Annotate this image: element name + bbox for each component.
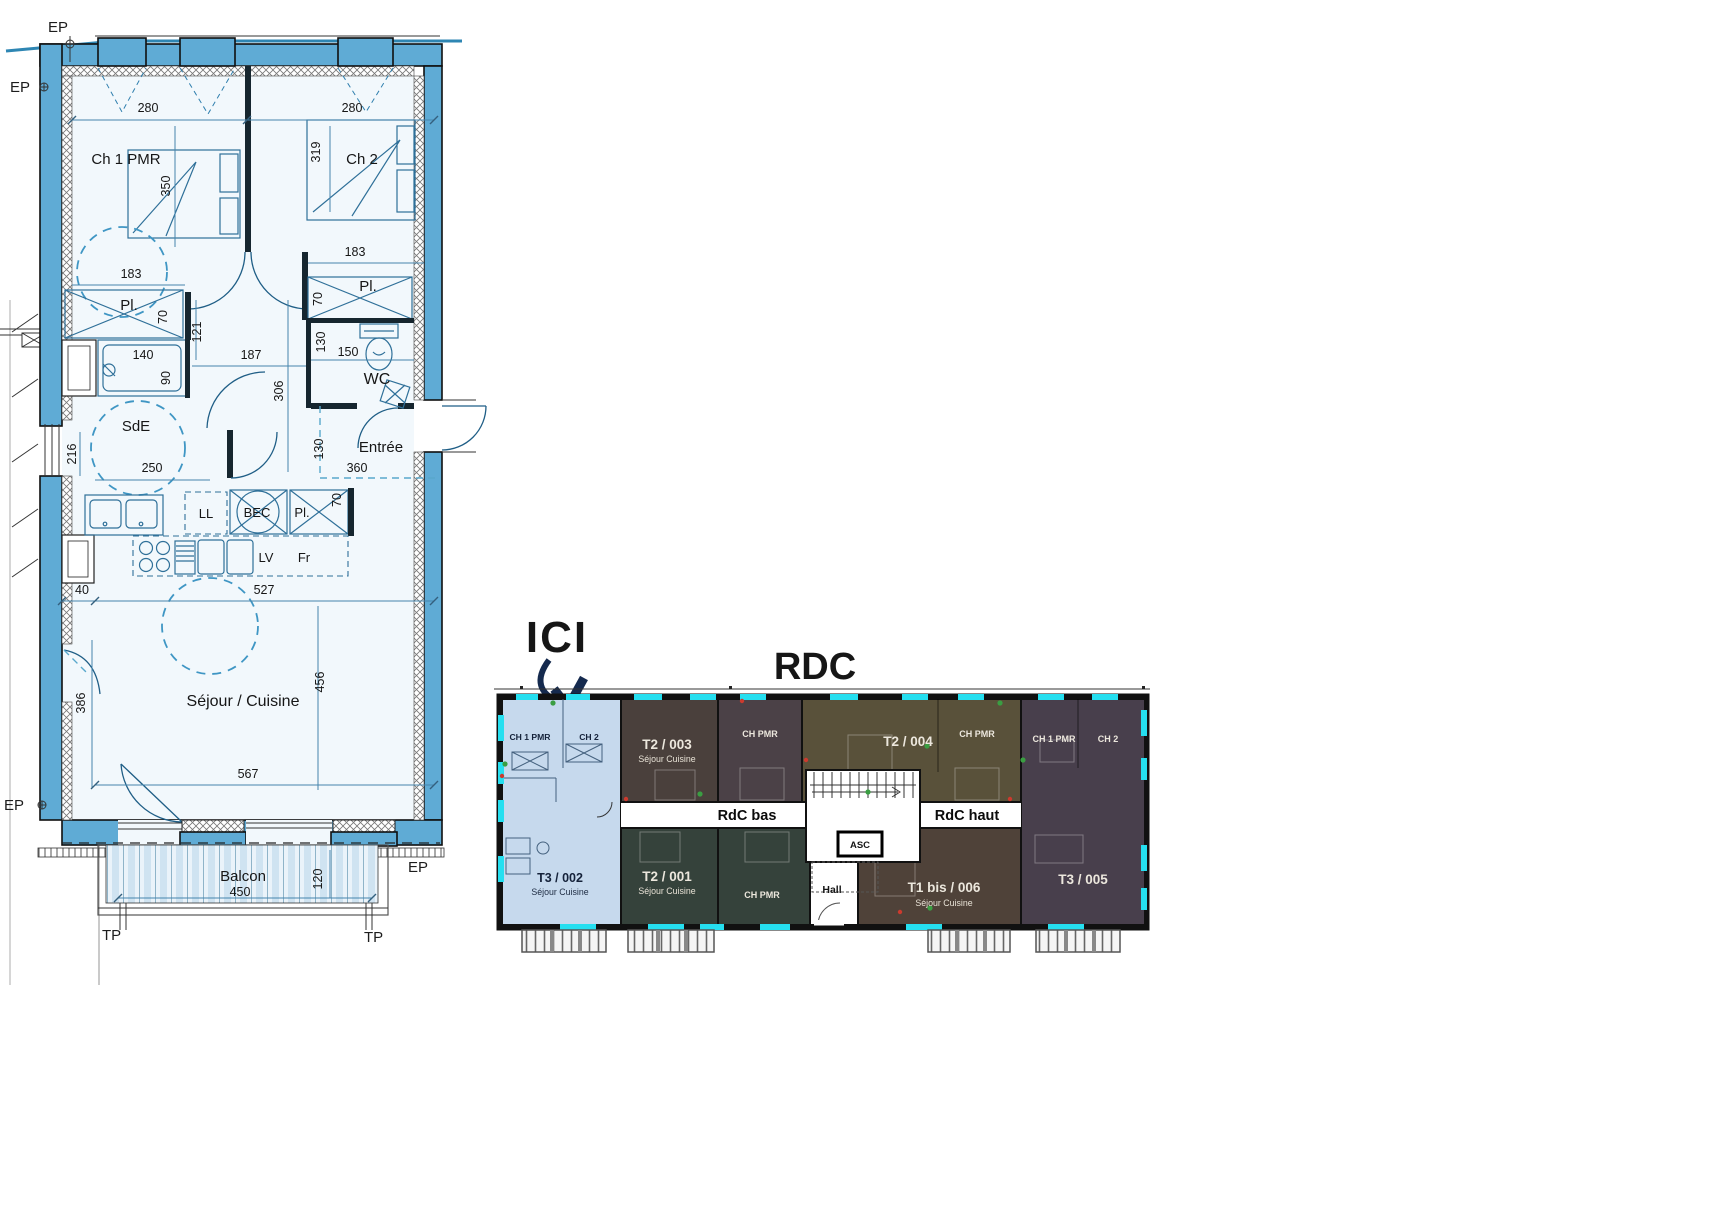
room-label-sejour: Séjour / Cuisine bbox=[187, 693, 300, 710]
unit-ch-pmr-top bbox=[718, 699, 802, 802]
dim-entree-w: 360 bbox=[347, 461, 368, 475]
corridor-right-label: RdC haut bbox=[935, 808, 1000, 824]
dim-sejour-h: 456 bbox=[313, 672, 327, 693]
t3-002-id: T3 / 002 bbox=[537, 871, 583, 885]
dim-sde-w: 250 bbox=[142, 461, 163, 475]
ch-pmr-top-label: CH PMR bbox=[742, 729, 778, 739]
closet-left-label: Pl. bbox=[120, 297, 138, 314]
ep-marker-left: EP bbox=[10, 79, 30, 96]
room-label-ch1: Ch 1 PMR bbox=[91, 151, 160, 168]
dim-hall-h: 306 bbox=[272, 381, 286, 402]
dim-wc-d: 130 bbox=[314, 332, 328, 353]
dishwasher-label: LV bbox=[259, 550, 274, 565]
room-label-wc: WC bbox=[364, 371, 391, 388]
dim-hall-w: 121 bbox=[190, 322, 204, 343]
here-label: ICI bbox=[526, 613, 588, 662]
t3-005-id: T3 / 005 bbox=[1058, 872, 1108, 887]
overview-title: RDC bbox=[774, 646, 856, 688]
dim-kitchen-off: 40 bbox=[75, 583, 89, 597]
t2-001-id: T2 / 001 bbox=[642, 869, 692, 884]
dim-balcon-d: 120 bbox=[311, 869, 325, 890]
bec-label: BEC bbox=[244, 505, 271, 520]
t2-003-living: Séjour Cuisine bbox=[638, 754, 695, 764]
dim-ch1-w: 280 bbox=[138, 101, 159, 115]
left-window bbox=[45, 424, 59, 476]
t1bis-006-living: Séjour Cuisine bbox=[915, 898, 972, 908]
dim-ch2-cl: 183 bbox=[345, 245, 366, 259]
dim-sejour-side: 386 bbox=[74, 693, 88, 714]
tp-marker-left: TP bbox=[102, 927, 121, 944]
t2-004-id: T2 / 004 bbox=[883, 734, 933, 749]
ep-marker-top: EP bbox=[48, 19, 68, 36]
t2-001-room: CH PMR bbox=[744, 890, 780, 900]
dim-ch2-w: 280 bbox=[342, 101, 363, 115]
dim-shower-w: 140 bbox=[133, 348, 154, 362]
dim-pl-right: 70 bbox=[311, 292, 325, 306]
room-label-entree: Entrée bbox=[359, 439, 403, 456]
overview-plan: ICI RDC bbox=[494, 613, 1150, 952]
t3-005-room1: CH 1 PMR bbox=[1032, 734, 1076, 744]
t2-004-room: CH PMR bbox=[959, 729, 995, 739]
balcony-stubs bbox=[522, 930, 1120, 952]
t2-001-living: Séjour Cuisine bbox=[638, 886, 695, 896]
dim-wc-w: 150 bbox=[338, 345, 359, 359]
dim-sde-d: 216 bbox=[65, 444, 79, 465]
dim-pl-left: 70 bbox=[156, 310, 170, 324]
t3-005-room2: CH 2 bbox=[1098, 734, 1119, 744]
dim-ch2-h: 319 bbox=[309, 142, 323, 163]
corridor-left-label: RdC bas bbox=[718, 808, 777, 824]
dim-hall-l: 187 bbox=[241, 348, 262, 362]
t3-002-living: Séjour Cuisine bbox=[531, 887, 588, 897]
t1bis-006-id: T1 bis / 006 bbox=[908, 880, 981, 895]
unit-ch-pmr-bottom bbox=[718, 828, 810, 925]
dim-balcon-w: 450 bbox=[230, 885, 251, 899]
dim-pl-kitchen: 70 bbox=[330, 493, 344, 507]
dim-ch1-h: 350 bbox=[159, 176, 173, 197]
unit-t3-005 bbox=[1021, 699, 1145, 925]
tp-marker-right: TP bbox=[364, 929, 383, 946]
t3-002-room1: CH 1 PMR bbox=[509, 732, 551, 742]
floor-plan-canvas: Ch 1 PMR Ch 2 Pl. Pl. bbox=[0, 0, 1734, 1226]
fridge-label: Fr bbox=[298, 550, 311, 565]
closet-right-label: Pl. bbox=[359, 278, 377, 295]
detail-plan: Ch 1 PMR Ch 2 Pl. Pl. bbox=[0, 19, 486, 985]
dim-shower-d: 90 bbox=[159, 371, 173, 385]
room-label-ch2: Ch 2 bbox=[346, 151, 378, 168]
t3-002-room2: CH 2 bbox=[579, 732, 599, 742]
dim-ch1-cl: 183 bbox=[121, 267, 142, 281]
ep-marker-bottom-right: EP bbox=[408, 859, 428, 876]
hall-label: Hall bbox=[822, 884, 841, 896]
t2-003-id: T2 / 003 bbox=[642, 737, 692, 752]
ep-marker-bottom-left: EP bbox=[4, 797, 24, 814]
room-label-balcon: Balcon bbox=[220, 868, 266, 885]
dim-sejour-w1: 527 bbox=[254, 583, 275, 597]
washer-label: LL bbox=[199, 506, 213, 521]
dim-entree-d: 130 bbox=[312, 439, 326, 460]
kitchen-closet-label: Pl. bbox=[294, 505, 309, 520]
dim-sejour-w2: 567 bbox=[238, 767, 259, 781]
elevator-label: ASC bbox=[850, 840, 870, 851]
room-label-sde: SdE bbox=[122, 418, 150, 435]
entrance-porch bbox=[442, 400, 486, 452]
